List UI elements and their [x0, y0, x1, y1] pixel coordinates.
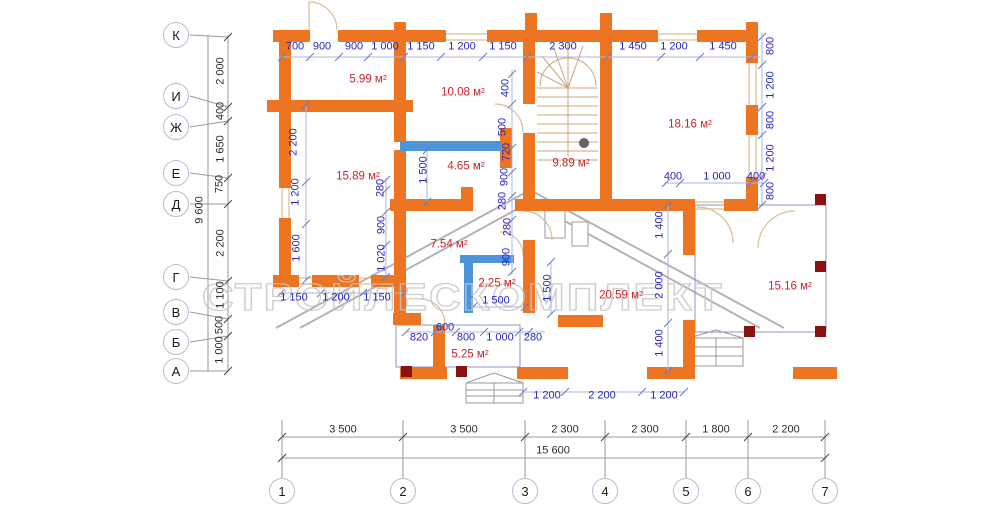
window-horizontal-small	[460, 255, 514, 263]
entry-door-arc	[309, 2, 337, 30]
plan-drawing	[0, 0, 1000, 526]
floor-plan-page: СТРОЙЛЕСКОМПЛЕКТ 7009009001 0001 1501 20…	[0, 0, 1000, 526]
window-horizontal	[400, 141, 501, 151]
terrace-door-arc	[697, 207, 733, 243]
staircase	[537, 42, 598, 160]
stair-newel-post	[579, 138, 589, 148]
watermark-text: СТРОЙЛЕСКОМПЛЕКТ	[202, 277, 724, 320]
